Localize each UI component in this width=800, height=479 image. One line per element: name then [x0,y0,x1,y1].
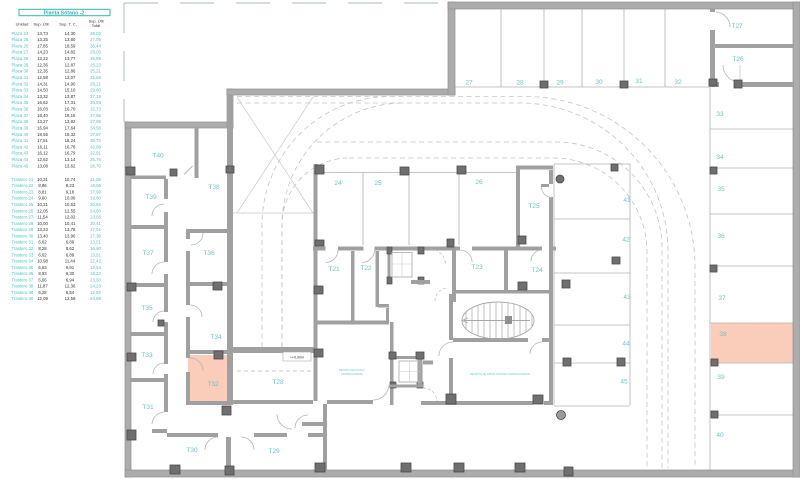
svg-text:14,30: 14,30 [65,31,76,36]
svg-text:+/-0,00m: +/-0,00m [290,356,304,360]
svg-text:16,70: 16,70 [65,107,76,112]
svg-text:18,55: 18,55 [37,132,48,137]
svg-text:T21: T21 [328,266,340,273]
svg-text:12,05: 12,05 [37,208,48,213]
svg-text:20,84: 20,84 [90,202,101,207]
svg-text:18,40: 18,40 [37,113,48,118]
svg-text:12,09: 12,09 [37,296,48,301]
svg-text:19,32: 19,32 [65,132,76,137]
svg-text:13,51: 13,51 [90,252,101,257]
svg-text:Trastero 29: Trastero 29 [12,227,34,232]
svg-text:13,82: 13,82 [65,119,76,124]
svg-text:T36: T36 [203,250,215,257]
svg-text:24,60: 24,60 [90,208,101,213]
svg-text:28: 28 [516,80,524,87]
svg-text:14,50: 14,50 [37,88,48,93]
svg-text:13,62: 13,62 [65,163,76,168]
svg-text:8,93: 8,93 [38,271,47,276]
svg-text:35,75: 35,75 [90,138,101,143]
svg-text:17,85: 17,85 [37,43,48,48]
svg-text:13,25: 13,25 [37,37,48,42]
svg-text:Total: Total [92,23,101,28]
svg-text:9,23: 9,23 [66,183,75,188]
svg-text:14,82: 14,82 [65,50,76,55]
svg-text:Trastero 31: Trastero 31 [12,240,34,245]
svg-text:12,36: 12,36 [65,284,76,289]
svg-text:9,60: 9,60 [38,196,47,201]
svg-text:T38: T38 [208,184,220,191]
svg-text:Sup. T. C.: Sup. T. C. [59,22,77,27]
svg-text:Trastero 33: Trastero 33 [12,252,34,257]
svg-text:Trastero 30: Trastero 30 [12,233,34,238]
svg-text:32,73: 32,73 [90,107,101,112]
svg-text:27,19: 27,19 [90,94,101,99]
svg-text:13,08: 13,08 [37,163,48,168]
svg-text:Sup. Útil: Sup. Útil [33,22,48,27]
svg-text:10,21: 10,21 [37,202,48,207]
svg-text:10,00: 10,00 [65,196,76,201]
svg-text:6,66: 6,66 [38,277,47,282]
svg-text:6,89: 6,89 [66,252,75,257]
svg-text:12,62: 12,62 [37,157,48,162]
svg-text:Trastero 39: Trastero 39 [12,290,34,295]
svg-text:6,91: 6,91 [66,265,75,270]
svg-text:27,01: 27,01 [90,227,101,232]
svg-text:27: 27 [465,80,473,87]
svg-text:T27: T27 [731,23,743,30]
svg-text:Trastero 23: Trastero 23 [12,190,34,195]
svg-text:41: 41 [623,197,631,204]
svg-text:42: 42 [622,237,630,244]
svg-text:22,42: 22,42 [90,259,101,264]
svg-text:12,02: 12,02 [65,215,76,220]
svg-text:T26: T26 [732,56,744,63]
svg-text:27,36: 27,36 [90,233,101,238]
svg-text:17,31: 17,31 [65,100,76,105]
svg-text:11,87: 11,87 [37,284,48,289]
svg-text:12,86: 12,86 [65,69,76,74]
svg-text:T37: T37 [142,250,154,257]
svg-text:Plaza 43: Plaza 43 [12,151,29,156]
svg-text:T31: T31 [142,404,154,411]
svg-text:32,91: 32,91 [90,151,101,156]
svg-text:10,31: 10,31 [37,177,48,182]
svg-text:24,23: 24,23 [90,284,101,289]
svg-text:Trastero 25: Trastero 25 [12,202,34,207]
svg-text:T22: T22 [360,265,372,272]
svg-text:6,62: 6,62 [38,252,47,257]
svg-text:6,62: 6,62 [38,240,47,245]
svg-text:16,62: 16,62 [37,100,48,105]
svg-text:12,58: 12,58 [37,75,48,80]
svg-text:Trastero 28: Trastero 28 [12,221,34,226]
svg-text:25,23: 25,23 [90,62,101,67]
svg-text:12,35: 12,35 [37,69,48,74]
svg-text:Trastero 24: Trastero 24 [12,196,34,201]
svg-text:11,44: 11,44 [65,259,76,264]
svg-text:Plaza 35: Plaza 35 [12,100,29,105]
svg-text:6,89: 6,89 [66,240,75,245]
svg-text:40: 40 [716,432,724,439]
svg-text:34,58: 34,58 [90,125,101,130]
svg-text:13,73: 13,73 [37,31,48,36]
svg-text:6,28: 6,28 [38,290,47,295]
svg-text:26,99: 26,99 [90,56,101,61]
svg-text:13,22: 13,22 [37,56,48,61]
svg-text:T28: T28 [272,379,284,386]
svg-text:33: 33 [716,111,724,118]
svg-text:10,98: 10,98 [37,259,48,264]
svg-text:Trastero 35: Trastero 35 [12,265,34,270]
svg-text:CENTRALIZADAS: CENTRALIZADAS [341,372,363,376]
svg-text:13,80: 13,80 [65,37,76,42]
svg-text:Plaza 34: Plaza 34 [12,94,29,99]
svg-text:Plaza 31: Plaza 31 [12,75,29,80]
svg-text:Plaza 44: Plaza 44 [12,157,29,162]
svg-text:18,23: 18,23 [90,271,101,276]
svg-text:24,68: 24,68 [90,296,101,301]
svg-text:Trastero 26: Trastero 26 [12,208,34,213]
svg-text:T25: T25 [528,203,540,210]
svg-text:12,59: 12,59 [65,296,76,301]
svg-text:Trastero 32: Trastero 32 [12,246,34,251]
svg-text:16,94: 16,94 [37,125,48,130]
svg-text:RECINTO DE INSTAL.: RECINTO DE INSTAL. [339,368,366,372]
svg-text:36,44: 36,44 [90,43,101,48]
svg-text:6,63: 6,63 [38,265,47,270]
svg-text:24: 24 [334,180,342,187]
svg-text:Trastero 27: Trastero 27 [12,215,34,220]
svg-text:21,05: 21,05 [90,177,101,182]
svg-text:31: 31 [635,78,643,85]
svg-text:Plaza 30: Plaza 30 [12,69,29,74]
svg-text:Plaza 27: Plaza 27 [12,50,29,55]
svg-text:Plaza 32: Plaza 32 [12,81,29,86]
svg-text:13,23: 13,23 [37,227,48,232]
svg-text:Plaza 29: Plaza 29 [12,62,29,67]
svg-text:8,86: 8,86 [38,183,47,188]
svg-text:12,36: 12,36 [37,62,48,67]
svg-text:8,28: 8,28 [38,246,47,251]
svg-text:16,03: 16,03 [37,107,48,112]
svg-text:26: 26 [475,179,483,186]
svg-text:12,55: 12,55 [65,208,76,213]
svg-text:18,59: 18,59 [65,43,76,48]
svg-text:13,54: 13,54 [90,265,101,270]
svg-text:RECINTO DE INSTALACIONES CENTR: RECINTO DE INSTALACIONES CENTRALIZADAS [470,372,530,376]
svg-text:25,65: 25,65 [90,75,101,80]
svg-text:27,05: 27,05 [90,37,101,42]
svg-text:10,41: 10,41 [65,221,76,226]
svg-text:14,31: 14,31 [37,81,48,86]
svg-text:18,09: 18,09 [90,183,101,188]
svg-text:33,93: 33,93 [90,100,101,105]
svg-text:13,32: 13,32 [37,94,48,99]
svg-text:13,14: 13,14 [65,157,76,162]
svg-text:27,09: 27,09 [90,119,101,124]
svg-text:Plaza 45: Plaza 45 [12,163,29,168]
svg-text:32: 32 [674,79,682,86]
svg-text:Plaza 36: Plaza 36 [12,107,29,112]
svg-text:34: 34 [716,154,724,161]
svg-text:16,11: 16,11 [37,144,48,149]
svg-text:13,27: 13,27 [37,119,48,124]
svg-text:T34: T34 [210,334,222,341]
svg-text:T30: T30 [186,447,198,454]
svg-text:26,70: 26,70 [90,163,101,168]
svg-text:37,56: 37,56 [90,113,101,118]
svg-text:Plaza 28: Plaza 28 [12,56,29,61]
svg-text:Plaza 33: Plaza 33 [12,88,29,93]
svg-text:Unidad: Unidad [16,22,29,27]
svg-text:T24: T24 [531,267,543,274]
svg-text:13,07: 13,07 [65,75,76,80]
svg-text:37: 37 [718,295,726,302]
svg-text:25: 25 [374,180,382,187]
svg-text:Plaza 39: Plaza 39 [12,125,29,130]
svg-text:25,21: 25,21 [90,69,101,74]
svg-text:16,12: 16,12 [37,151,48,156]
svg-text:13,77: 13,77 [65,56,76,61]
svg-text:29: 29 [556,80,564,87]
svg-text:17,64: 17,64 [65,125,76,130]
svg-text:Trastero 34: Trastero 34 [12,259,34,264]
svg-text:14,23: 14,23 [37,50,48,55]
svg-text:13,78: 13,78 [65,227,76,232]
svg-text:37,87: 37,87 [90,132,101,137]
svg-text:36: 36 [717,233,725,240]
svg-text:45: 45 [620,379,628,386]
svg-text:8,81: 8,81 [38,190,47,195]
svg-text:30: 30 [595,79,603,86]
svg-text:13,40: 13,40 [37,233,48,238]
svg-text:Trastero 40: Trastero 40 [12,296,34,301]
svg-text:19,16: 19,16 [65,113,76,118]
svg-text:Plaza 24: Plaza 24 [12,31,29,36]
svg-text:Trastero 37: Trastero 37 [12,277,34,282]
svg-text:T29: T29 [268,448,280,455]
svg-text:19,60: 19,60 [90,196,101,201]
svg-text:13,87: 13,87 [65,94,76,99]
svg-text:6,94: 6,94 [66,277,75,282]
svg-text:16,90: 16,90 [90,246,101,251]
svg-text:Plaza 37: Plaza 37 [12,113,29,118]
svg-text:9,30: 9,30 [66,271,75,276]
svg-text:Trastero 21: Trastero 21 [12,177,34,182]
svg-text:6,54: 6,54 [66,290,75,295]
svg-text:Plaza 41: Plaza 41 [12,138,29,143]
svg-text:Trastero 22: Trastero 22 [12,183,34,188]
svg-text:Plaza 40: Plaza 40 [12,132,29,137]
svg-text:T35: T35 [141,305,153,312]
svg-text:Plaza 26: Plaza 26 [12,43,29,48]
svg-text:Plaza 42: Plaza 42 [12,144,29,149]
svg-text:38: 38 [719,331,727,338]
svg-text:17,99: 17,99 [90,190,101,195]
svg-text:13,96: 13,96 [65,233,76,238]
svg-text:T23: T23 [471,264,483,271]
svg-text:15,10: 15,10 [65,88,76,93]
svg-text:29,60: 29,60 [90,88,101,93]
svg-text:17,51: 17,51 [37,138,48,143]
svg-text:35: 35 [717,186,725,193]
svg-text:10,74: 10,74 [65,177,76,182]
svg-text:43: 43 [623,294,631,301]
svg-text:39: 39 [717,374,725,381]
svg-text:18,24: 18,24 [65,138,76,143]
svg-text:13,60: 13,60 [90,277,101,282]
svg-text:23,56: 23,56 [90,215,101,220]
svg-text:16,79: 16,79 [65,151,76,156]
svg-text:Plaza 38: Plaza 38 [12,119,29,124]
svg-text:20,41: 20,41 [90,221,101,226]
svg-text:25,76: 25,76 [90,157,101,162]
svg-text:Plaza 25: Plaza 25 [12,37,29,42]
svg-text:Planta Sótano -2: Planta Sótano -2 [44,10,85,16]
svg-text:10,63: 10,63 [65,202,76,207]
svg-text:28,03: 28,03 [90,31,101,36]
svg-text:11,54: 11,54 [37,215,48,220]
svg-text:8,62: 8,62 [66,246,75,251]
svg-text:T32: T32 [207,381,219,388]
svg-text:32,89: 32,89 [90,144,101,149]
svg-text:T39: T39 [145,194,157,201]
svg-text:16,78: 16,78 [65,144,76,149]
svg-text:Trastero 38: Trastero 38 [12,284,34,289]
svg-text:13,51: 13,51 [90,240,101,245]
svg-text:T40: T40 [152,153,164,160]
svg-text:29,21: 29,21 [90,81,101,86]
svg-text:T33: T33 [141,352,153,359]
svg-text:Trastero 36: Trastero 36 [12,271,34,276]
svg-text:9,18: 9,18 [66,190,75,195]
svg-text:12,87: 12,87 [65,62,76,67]
svg-text:44: 44 [622,341,630,348]
svg-text:14,90: 14,90 [65,81,76,86]
svg-text:12,82: 12,82 [90,290,101,295]
svg-text:10,00: 10,00 [37,221,48,226]
svg-text:29,05: 29,05 [90,50,101,55]
